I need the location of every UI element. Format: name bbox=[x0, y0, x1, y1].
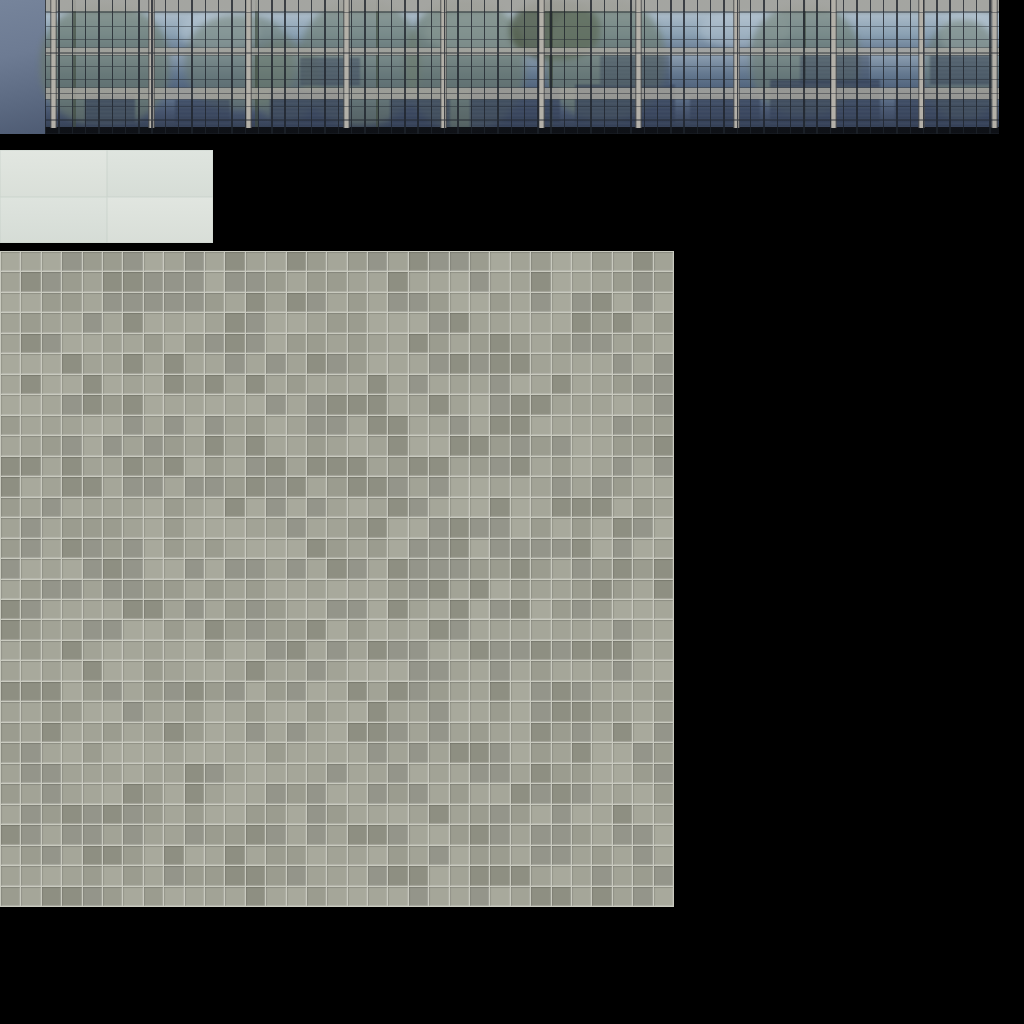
floor-tile bbox=[21, 334, 40, 353]
floor-tile bbox=[592, 825, 611, 844]
floor-tile bbox=[429, 641, 448, 660]
floor-tile bbox=[531, 784, 550, 803]
floor-tile bbox=[572, 518, 591, 537]
floor-tile bbox=[266, 866, 285, 885]
floor-tile bbox=[470, 498, 489, 517]
floor-tile bbox=[348, 661, 367, 680]
floor-tile bbox=[450, 395, 469, 414]
floor-tile bbox=[225, 866, 244, 885]
floor-tile bbox=[1, 498, 20, 517]
floor-tile bbox=[613, 395, 632, 414]
floor-tile bbox=[266, 805, 285, 824]
floor-tile bbox=[450, 498, 469, 517]
floor-tile bbox=[429, 600, 448, 619]
floor-tile bbox=[348, 723, 367, 742]
floor-tile bbox=[266, 887, 285, 906]
floor-tile bbox=[613, 436, 632, 455]
floor-tile bbox=[287, 620, 306, 639]
floor-tile bbox=[552, 539, 571, 558]
floor-tile bbox=[613, 559, 632, 578]
floor-tile bbox=[103, 395, 122, 414]
floor-tile bbox=[654, 375, 673, 394]
floor-tile bbox=[185, 600, 204, 619]
floor-tile bbox=[307, 375, 326, 394]
floor-tile bbox=[205, 887, 224, 906]
floor-tile bbox=[348, 436, 367, 455]
floor-tile bbox=[327, 723, 346, 742]
floor-tile bbox=[185, 539, 204, 558]
floor-tile bbox=[511, 272, 530, 291]
floor-tile bbox=[450, 805, 469, 824]
floor-tile bbox=[368, 272, 387, 291]
floor-tile bbox=[552, 272, 571, 291]
floor-tile bbox=[450, 723, 469, 742]
floor-tile bbox=[62, 477, 81, 496]
floor-tile bbox=[42, 784, 61, 803]
floor-tile bbox=[246, 559, 265, 578]
floor-tile bbox=[103, 600, 122, 619]
floor-tile bbox=[490, 661, 509, 680]
floor-tile bbox=[511, 334, 530, 353]
floor-tile bbox=[287, 477, 306, 496]
floor-tile bbox=[21, 641, 40, 660]
floor-tile bbox=[225, 334, 244, 353]
floor-tile bbox=[185, 641, 204, 660]
floor-tile bbox=[511, 682, 530, 701]
floor-tile bbox=[327, 313, 346, 332]
floor-tile bbox=[470, 395, 489, 414]
floor-tile bbox=[531, 375, 550, 394]
floor-tile bbox=[511, 661, 530, 680]
floor-tile bbox=[348, 764, 367, 783]
floor-tile bbox=[429, 539, 448, 558]
floor-tile bbox=[123, 661, 142, 680]
floor-tile bbox=[225, 395, 244, 414]
floor-tile bbox=[654, 436, 673, 455]
floor-tile bbox=[654, 395, 673, 414]
floor-tile bbox=[572, 641, 591, 660]
floor-tile bbox=[511, 395, 530, 414]
floor-tile bbox=[368, 436, 387, 455]
floor-tile bbox=[1, 580, 20, 599]
floor-tile bbox=[123, 682, 142, 701]
floor-tile bbox=[572, 620, 591, 639]
floor-tile bbox=[225, 887, 244, 906]
floor-tile bbox=[388, 272, 407, 291]
floor-tile bbox=[62, 580, 81, 599]
floor-tile bbox=[368, 723, 387, 742]
floor-tile bbox=[42, 764, 61, 783]
floor-tile bbox=[368, 559, 387, 578]
floor-tile bbox=[450, 539, 469, 558]
floor-tile bbox=[62, 661, 81, 680]
floor-tile bbox=[83, 252, 102, 271]
floor-tile bbox=[348, 805, 367, 824]
floor-tile bbox=[327, 416, 346, 435]
floor-tile bbox=[1, 436, 20, 455]
floor-tile bbox=[409, 313, 428, 332]
floor-tile bbox=[205, 498, 224, 517]
floor-tile bbox=[246, 293, 265, 312]
floor-tile bbox=[450, 764, 469, 783]
floor-tile bbox=[246, 313, 265, 332]
floor-tile bbox=[388, 682, 407, 701]
floor-tile bbox=[633, 252, 652, 271]
floor-tile bbox=[123, 252, 142, 271]
floor-tile bbox=[511, 498, 530, 517]
floor-tile bbox=[429, 354, 448, 373]
floor-tile bbox=[164, 661, 183, 680]
floor-tile bbox=[368, 375, 387, 394]
floor-tile bbox=[327, 600, 346, 619]
floor-tile bbox=[307, 723, 326, 742]
floor-tile bbox=[205, 784, 224, 803]
floor-tile bbox=[62, 764, 81, 783]
floor-tile bbox=[62, 887, 81, 906]
floor-tile bbox=[654, 743, 673, 762]
floor-tile bbox=[83, 395, 102, 414]
floor-tile bbox=[225, 436, 244, 455]
plaster-quadrant bbox=[0, 150, 107, 197]
floor-tile bbox=[633, 395, 652, 414]
floor-tile bbox=[205, 293, 224, 312]
floor-tile bbox=[164, 702, 183, 721]
floor-tile bbox=[103, 416, 122, 435]
floor-tile bbox=[531, 436, 550, 455]
floor-tile bbox=[409, 416, 428, 435]
floor-tile bbox=[531, 682, 550, 701]
floor-tile bbox=[144, 825, 163, 844]
floor-tile bbox=[1, 395, 20, 414]
floor-tile bbox=[592, 764, 611, 783]
floor-tile bbox=[348, 846, 367, 865]
floor-tile bbox=[21, 395, 40, 414]
floor-tile bbox=[470, 416, 489, 435]
floor-tile bbox=[552, 620, 571, 639]
plaster-quadrant bbox=[107, 197, 214, 244]
floor-tile bbox=[552, 416, 571, 435]
floor-tile bbox=[633, 764, 652, 783]
floor-tile bbox=[266, 293, 285, 312]
floor-tile bbox=[103, 293, 122, 312]
floor-tile bbox=[103, 641, 122, 660]
floor-tile bbox=[205, 334, 224, 353]
floor-tile bbox=[490, 416, 509, 435]
floor-tile bbox=[613, 375, 632, 394]
floor-tile bbox=[409, 764, 428, 783]
floor-tile bbox=[307, 866, 326, 885]
floor-tile bbox=[490, 846, 509, 865]
floor-tile bbox=[103, 272, 122, 291]
floor-tile bbox=[654, 784, 673, 803]
floor-tile bbox=[123, 723, 142, 742]
floor-tile bbox=[103, 436, 122, 455]
floor-tile bbox=[103, 457, 122, 476]
floor-tile bbox=[103, 887, 122, 906]
floor-tile bbox=[327, 764, 346, 783]
floor-tile bbox=[83, 825, 102, 844]
floor-tile bbox=[42, 620, 61, 639]
floor-tile bbox=[42, 293, 61, 312]
floor-tile bbox=[633, 887, 652, 906]
floor-tile bbox=[531, 600, 550, 619]
floor-tile bbox=[409, 784, 428, 803]
floor-tile bbox=[368, 416, 387, 435]
floor-tile bbox=[633, 334, 652, 353]
floor-tile bbox=[633, 641, 652, 660]
floor-tile bbox=[205, 743, 224, 762]
floor-tile bbox=[246, 743, 265, 762]
floor-tile bbox=[123, 518, 142, 537]
floor-tile bbox=[103, 846, 122, 865]
floor-tile bbox=[348, 600, 367, 619]
floor-tile bbox=[103, 334, 122, 353]
floor-tile bbox=[21, 436, 40, 455]
floor-tile bbox=[511, 518, 530, 537]
floor-tile bbox=[246, 805, 265, 824]
tile-floor-texture-region bbox=[0, 251, 674, 907]
floor-tile bbox=[21, 887, 40, 906]
floor-tile bbox=[62, 723, 81, 742]
floor-tile bbox=[103, 518, 122, 537]
floor-tile bbox=[307, 600, 326, 619]
floor-tile bbox=[83, 334, 102, 353]
floor-tile bbox=[103, 723, 122, 742]
floor-tile bbox=[490, 641, 509, 660]
floor-tile bbox=[307, 784, 326, 803]
floor-tile bbox=[511, 354, 530, 373]
floor-tile bbox=[266, 375, 285, 394]
floor-tile bbox=[205, 580, 224, 599]
floor-tile bbox=[185, 334, 204, 353]
floor-tile bbox=[144, 661, 163, 680]
floor-tile bbox=[123, 743, 142, 762]
floor-tile bbox=[572, 498, 591, 517]
floor-tile bbox=[613, 743, 632, 762]
floor-tile bbox=[205, 375, 224, 394]
floor-tile bbox=[450, 600, 469, 619]
floor-tile bbox=[572, 600, 591, 619]
floor-tile bbox=[654, 580, 673, 599]
floor-tile bbox=[531, 661, 550, 680]
floor-tile bbox=[531, 252, 550, 271]
floor-tile bbox=[123, 416, 142, 435]
floor-tile bbox=[592, 682, 611, 701]
floor-tile bbox=[185, 743, 204, 762]
floor-tile bbox=[62, 395, 81, 414]
floor-tile bbox=[123, 477, 142, 496]
floor-tile bbox=[613, 661, 632, 680]
floor-tile bbox=[613, 518, 632, 537]
floor-tile bbox=[185, 313, 204, 332]
floor-tile bbox=[62, 313, 81, 332]
floor-tile bbox=[572, 252, 591, 271]
floor-tile bbox=[266, 723, 285, 742]
floor-tile bbox=[144, 600, 163, 619]
floor-tile bbox=[246, 866, 265, 885]
floor-tile bbox=[246, 887, 265, 906]
floor-tile bbox=[205, 641, 224, 660]
floor-tile bbox=[388, 580, 407, 599]
floor-tile bbox=[348, 252, 367, 271]
floor-tile bbox=[368, 682, 387, 701]
floor-tile bbox=[592, 580, 611, 599]
floor-tile bbox=[633, 518, 652, 537]
floor-tile bbox=[368, 313, 387, 332]
floor-tile bbox=[409, 580, 428, 599]
floor-tile bbox=[42, 416, 61, 435]
floor-tile bbox=[552, 600, 571, 619]
floor-tile bbox=[185, 702, 204, 721]
floor-tile bbox=[654, 313, 673, 332]
floor-tile bbox=[287, 702, 306, 721]
floor-tile bbox=[21, 313, 40, 332]
floor-tile bbox=[42, 641, 61, 660]
floor-tile bbox=[103, 313, 122, 332]
floor-tile bbox=[429, 457, 448, 476]
floor-tile bbox=[388, 805, 407, 824]
floor-tile bbox=[287, 866, 306, 885]
floor-tile bbox=[266, 620, 285, 639]
floor-tile bbox=[388, 416, 407, 435]
floor-tile bbox=[368, 518, 387, 537]
floor-tile bbox=[450, 825, 469, 844]
floor-tile bbox=[62, 559, 81, 578]
floor-tile bbox=[388, 866, 407, 885]
floor-tile bbox=[123, 293, 142, 312]
floor-tile bbox=[572, 313, 591, 332]
floor-tile bbox=[327, 559, 346, 578]
floor-tile bbox=[287, 559, 306, 578]
floor-tile bbox=[307, 887, 326, 906]
floor-tile bbox=[429, 375, 448, 394]
floor-tile bbox=[531, 498, 550, 517]
floor-tile bbox=[266, 416, 285, 435]
floor-tile bbox=[531, 723, 550, 742]
floor-tile bbox=[307, 395, 326, 414]
floor-tile bbox=[511, 313, 530, 332]
floor-tile bbox=[490, 313, 509, 332]
floor-tile bbox=[470, 846, 489, 865]
floor-tile bbox=[490, 457, 509, 476]
floor-tile bbox=[123, 805, 142, 824]
floor-tile bbox=[368, 354, 387, 373]
floor-tile bbox=[490, 354, 509, 373]
floor-tile bbox=[633, 293, 652, 312]
floor-tile bbox=[511, 436, 530, 455]
floor-tile bbox=[62, 293, 81, 312]
floor-tile bbox=[633, 580, 652, 599]
floor-tile bbox=[409, 682, 428, 701]
floor-tile bbox=[470, 682, 489, 701]
floor-tile bbox=[613, 477, 632, 496]
floor-tile bbox=[185, 723, 204, 742]
floor-tile bbox=[552, 866, 571, 885]
floor-tile bbox=[164, 518, 183, 537]
floor-tile bbox=[388, 764, 407, 783]
floor-tile bbox=[572, 682, 591, 701]
floor-tile bbox=[185, 252, 204, 271]
floor-tile bbox=[42, 825, 61, 844]
floor-tile bbox=[1, 620, 20, 639]
floor-tile bbox=[21, 293, 40, 312]
floor-tile bbox=[144, 252, 163, 271]
floor-tile bbox=[144, 293, 163, 312]
floor-tile bbox=[287, 641, 306, 660]
floor-tile bbox=[470, 539, 489, 558]
floor-tile bbox=[225, 825, 244, 844]
floor-tile bbox=[552, 354, 571, 373]
floor-tile bbox=[327, 252, 346, 271]
floor-tile bbox=[654, 293, 673, 312]
floor-tile bbox=[246, 518, 265, 537]
floor-tile bbox=[450, 252, 469, 271]
floor-tile bbox=[552, 784, 571, 803]
floor-tile bbox=[144, 539, 163, 558]
floor-tile bbox=[185, 661, 204, 680]
floor-tile bbox=[592, 661, 611, 680]
floor-tile bbox=[592, 457, 611, 476]
floor-tile bbox=[83, 293, 102, 312]
plaster-panel-texture-region bbox=[0, 150, 213, 243]
floor-tile bbox=[225, 764, 244, 783]
floor-tile bbox=[62, 866, 81, 885]
floor-tile bbox=[368, 539, 387, 558]
floor-tile bbox=[307, 641, 326, 660]
floor-tile bbox=[348, 743, 367, 762]
floor-tile bbox=[83, 743, 102, 762]
floor-tile bbox=[552, 764, 571, 783]
floor-tile bbox=[470, 313, 489, 332]
floor-tile bbox=[123, 334, 142, 353]
floor-tile bbox=[307, 416, 326, 435]
floor-tile bbox=[450, 846, 469, 865]
floor-tile bbox=[307, 252, 326, 271]
floor-tile bbox=[572, 825, 591, 844]
floor-tile bbox=[42, 518, 61, 537]
floor-tile bbox=[470, 580, 489, 599]
floor-tile bbox=[205, 723, 224, 742]
floor-tile bbox=[633, 805, 652, 824]
floor-tile bbox=[592, 559, 611, 578]
floor-tile bbox=[511, 846, 530, 865]
floor-tile bbox=[572, 702, 591, 721]
floor-tile bbox=[552, 252, 571, 271]
floor-tile bbox=[368, 825, 387, 844]
floor-tile bbox=[123, 764, 142, 783]
floor-tile bbox=[246, 580, 265, 599]
floor-tile bbox=[429, 313, 448, 332]
floor-tile bbox=[83, 887, 102, 906]
floor-tile bbox=[511, 580, 530, 599]
floor-tile bbox=[225, 723, 244, 742]
floor-tile bbox=[1, 313, 20, 332]
floor-tile bbox=[144, 887, 163, 906]
floor-tile bbox=[103, 825, 122, 844]
floor-tile bbox=[633, 354, 652, 373]
floor-tile bbox=[552, 293, 571, 312]
floor-tile bbox=[327, 293, 346, 312]
floor-tile bbox=[1, 723, 20, 742]
floor-tile bbox=[348, 887, 367, 906]
floor-tile bbox=[654, 661, 673, 680]
floor-tile bbox=[103, 620, 122, 639]
floor-tile bbox=[83, 866, 102, 885]
floor-tile bbox=[613, 539, 632, 558]
floor-tile bbox=[348, 395, 367, 414]
floor-tile bbox=[205, 272, 224, 291]
floor-tile bbox=[205, 682, 224, 701]
